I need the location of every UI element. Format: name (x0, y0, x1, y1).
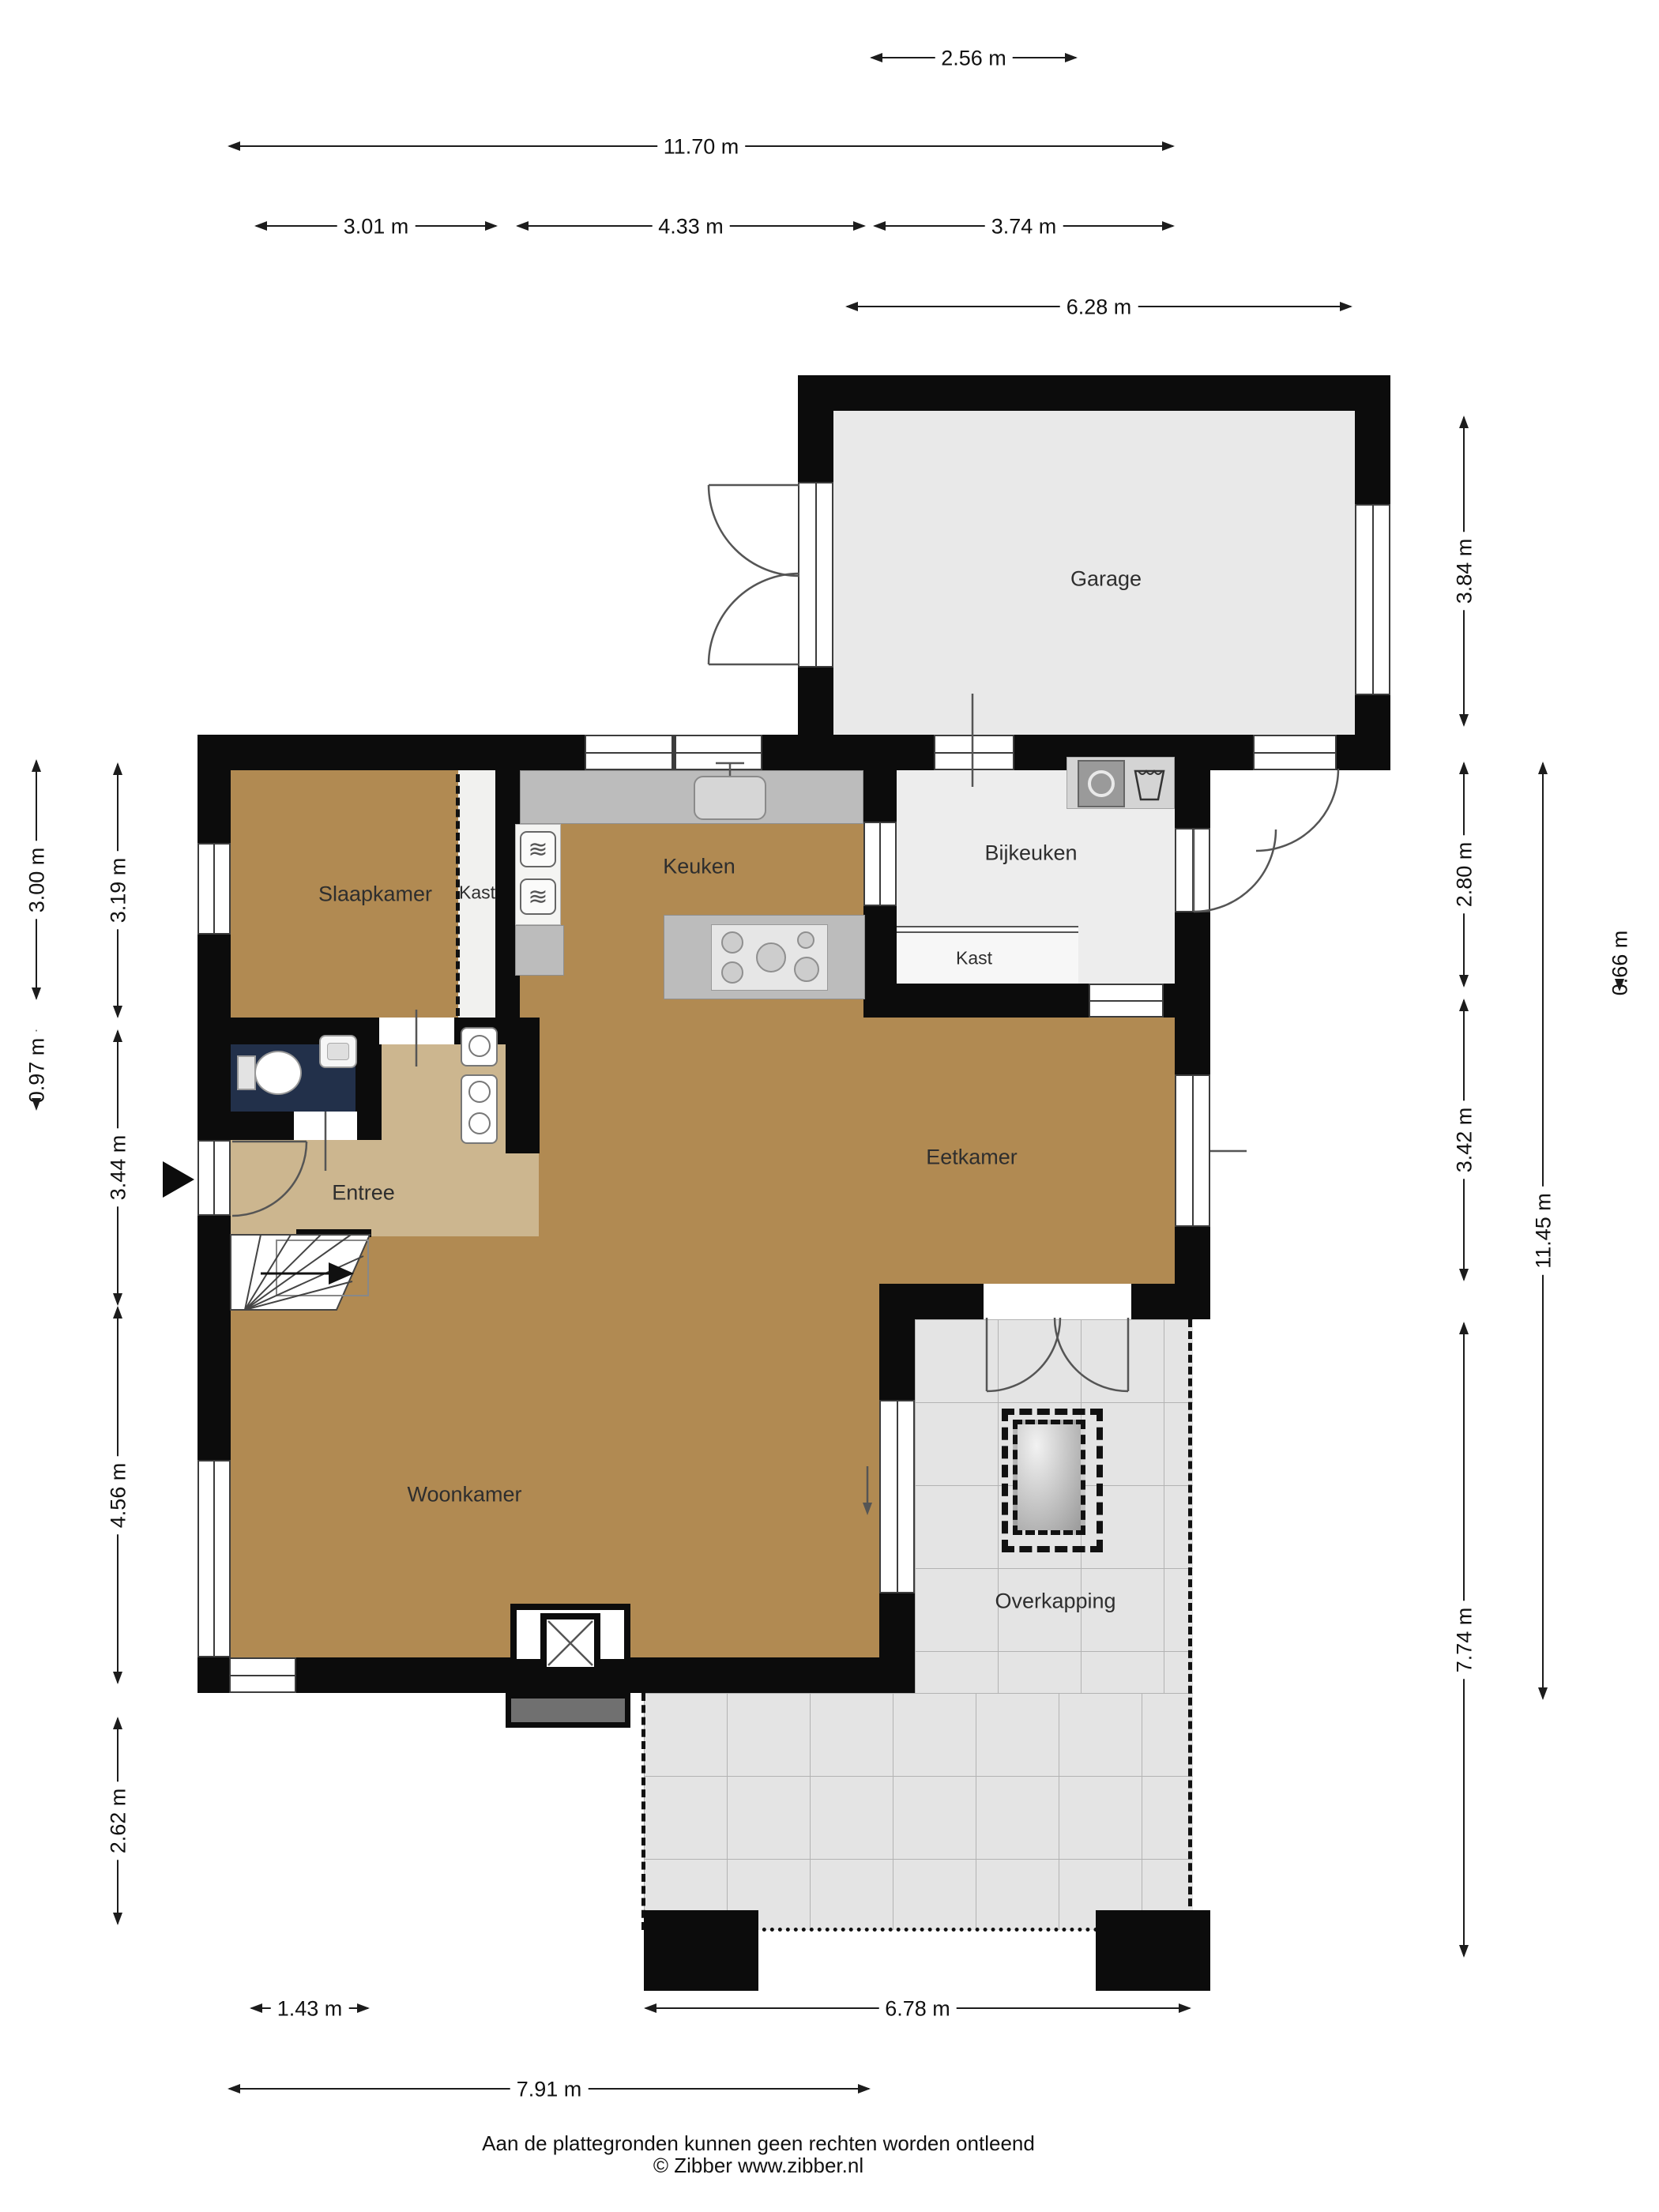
window-slaapkamer-left (197, 843, 231, 935)
door-eetkamer-overkapping (984, 1284, 1131, 1319)
fireplace-flue-inner (547, 1619, 594, 1667)
overkapping-skylight (1002, 1409, 1103, 1552)
dim-top-11-70: 11.70 m (229, 145, 1173, 147)
cooktop (711, 924, 828, 991)
overkapping-floor-lower (644, 1693, 1193, 1930)
overkapping-post-right (1096, 1910, 1210, 1991)
oven-icon: ≋ (520, 831, 556, 867)
label-eetkamer: Eetkamer (926, 1145, 1018, 1170)
dim-right-11-45: 11.45 m (1542, 763, 1544, 1698)
label-entree: Entree (332, 1181, 395, 1206)
overkapping-post-left (644, 1910, 758, 1991)
wall-garage-top (798, 375, 1390, 411)
label-garage: Garage (1070, 567, 1142, 592)
door-keuken-bijkeuken (863, 822, 897, 906)
wall-tech-closet (506, 1018, 540, 1153)
dim-top-3-01: 3.01 m (256, 225, 496, 227)
door-garage-west (798, 482, 833, 668)
boiler-icon (461, 1027, 498, 1066)
label-bijkeuken: Bijkeuken (984, 841, 1077, 866)
door-toilet-opening (294, 1112, 357, 1140)
dim-top-2-56: 2.56 m (871, 57, 1076, 58)
dim-left-3-19: 3.19 m (117, 764, 118, 1017)
washing-machine-icon (1078, 760, 1125, 807)
dim-top-4-33: 4.33 m (517, 225, 864, 227)
heater-unit-icon (461, 1074, 498, 1144)
dim-right-3-42: 3.42 m (1463, 1000, 1465, 1280)
door-bijkeuken-eetkamer (1089, 984, 1164, 1018)
label-overkapping: Overkapping (995, 1589, 1115, 1614)
front-door-opening (197, 1140, 231, 1216)
garage-double-door-arcs (709, 485, 799, 664)
label-kast-bijkeuken: Kast (956, 948, 992, 969)
entrance-arrow-icon (163, 1161, 194, 1198)
woonkamer-floor (231, 1236, 879, 1657)
dim-left-2-62: 2.62 m (117, 1718, 118, 1924)
door-garage-south (1253, 735, 1337, 770)
garage-south-door-arc (1256, 769, 1338, 851)
door-slaapkamer-opening (379, 1018, 454, 1044)
wall-toilet-right (355, 1044, 382, 1112)
label-keuken: Keuken (663, 855, 735, 879)
overkapping-right-edge (1188, 1319, 1192, 1930)
label-kast-slaapkamer: Kast (459, 882, 495, 904)
dim-right-0-66: 0.66 m (1619, 936, 1620, 990)
kitchen-cabinet-low (515, 925, 564, 976)
copyright-text: © Zibber www.zibber.nl (434, 2154, 1082, 2178)
dim-bottom-7-91: 7.91 m (229, 2088, 869, 2090)
toilet-bowl-icon (254, 1051, 302, 1095)
door-bijkeuken-east (1175, 828, 1210, 912)
dim-right-7-74: 7.74 m (1463, 1323, 1465, 1956)
window-eetkamer-right (1175, 1074, 1210, 1227)
floor-plan: ≋ ≋ (0, 0, 1659, 2212)
kitchen-counter-top (520, 770, 863, 824)
label-woonkamer: Woonkamer (407, 1483, 521, 1507)
toilet-tank (237, 1055, 256, 1090)
label-slaapkamer: Slaapkamer (318, 882, 432, 907)
window-woonkamer-bottom (229, 1657, 296, 1693)
dim-left-0-97: 0.97 m (36, 1031, 37, 1109)
dim-left-3-00: 3.00 m (36, 761, 37, 999)
window-woonkamer-left (197, 1460, 231, 1657)
window-woonkamer-right (879, 1400, 915, 1593)
dim-right-3-84: 3.84 m (1463, 417, 1465, 725)
disclaimer-text: Aan de plattegronden kunnen geen rechten… (434, 2131, 1082, 2156)
dim-top-3-74: 3.74 m (875, 225, 1173, 227)
window-garage-right (1355, 504, 1390, 695)
toilet-basin-icon (319, 1035, 357, 1068)
stairs-top-bar (296, 1229, 371, 1237)
fireplace-hearth (506, 1693, 630, 1728)
dim-bottom-1-43: 1.43 m (251, 2007, 368, 2009)
dim-left-4-56: 4.56 m (117, 1307, 118, 1683)
kast-bijkeuken-sliding-door (869, 926, 1078, 933)
overkapping-left-edge (641, 1693, 645, 1930)
dim-left-3-44: 3.44 m (117, 1031, 118, 1304)
dim-right-2-80: 2.80 m (1463, 763, 1465, 986)
window-keuken-mullion (671, 736, 676, 769)
window-garage-bottom (934, 735, 1014, 770)
dim-top-6-28: 6.28 m (847, 306, 1351, 307)
dim-bottom-6-78: 6.78 m (645, 2007, 1190, 2009)
kitchen-sink (694, 776, 766, 820)
oven-icon: ≋ (520, 878, 556, 915)
